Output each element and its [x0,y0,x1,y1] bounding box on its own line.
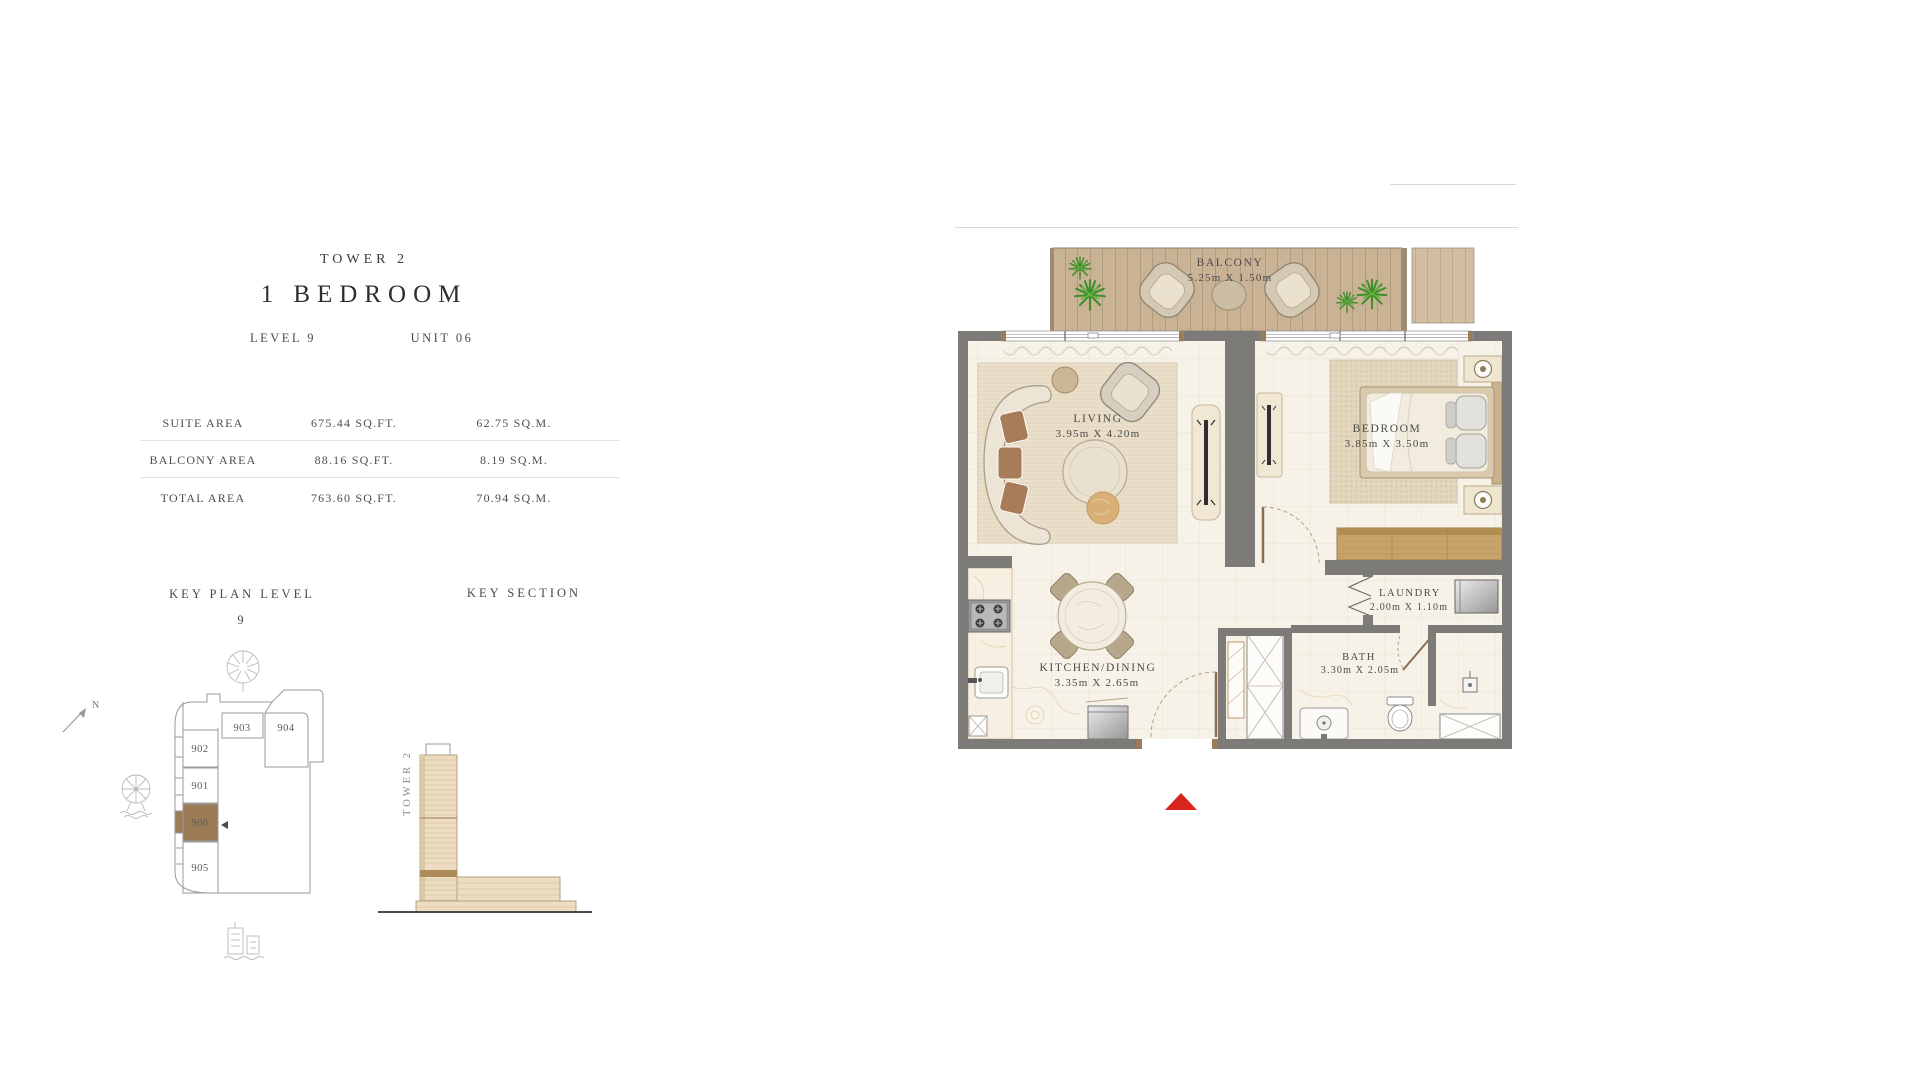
tower-section [420,744,457,912]
linen-closet [1247,634,1283,739]
level-label: LEVEL 9 [233,331,333,346]
washing-machine [1455,580,1498,613]
ferris-wheel-icon [120,775,152,819]
north-label: N [92,700,99,711]
side-table [1052,367,1078,393]
unit-number-901: 901 [191,781,208,792]
left-wall [958,331,968,749]
plant-icon [1358,280,1387,309]
balcony-area: BALCONY 5.25m X 1.50m [1050,248,1474,331]
kitchen-dims: 3.35m X 2.65m [1055,677,1140,689]
key-plan-level-number: 9 [142,613,342,628]
hallway-wall [1225,341,1255,567]
city-skyline-icon [224,922,264,960]
nightstand [1464,486,1502,514]
toilet [1387,697,1413,731]
table-separator [140,477,620,478]
unit-906-pointer-icon [221,821,228,829]
living-dims: 3.95m X 4.20m [1056,428,1141,440]
bedroom-window [1262,331,1472,341]
plant-icon [1069,257,1091,279]
title-block: TOWER 2 1 BEDROOM [228,252,500,309]
balcony-dims: 5.25m X 1.50m [1188,272,1273,284]
neighbour-balcony-deck [1412,248,1474,323]
area-row-label: BALCONY AREA [118,453,288,468]
plant-icon [1075,280,1105,310]
unit-number-904: 904 [277,723,295,734]
key-plan-diagram: N [50,640,340,960]
unit-type-title: 1 BEDROOM [228,281,500,309]
north-arrow-icon [63,708,86,732]
laundry-dims: 2.00m X 1.10m [1370,602,1448,613]
unit-number-903: 903 [233,723,250,734]
right-wall [1502,331,1512,749]
bath-label: BATH [1342,652,1376,663]
tower-label: TOWER 2 [228,252,500,268]
dining-set [1048,571,1135,660]
neighbour-boundary-line [1390,184,1516,185]
table-separator [140,440,620,441]
area-row-balcony: BALCONY AREA 88.16 SQ.FT. 8.19 SQ.M. [0,453,620,469]
laundry-label: LAUNDRY [1379,588,1441,599]
living-label: LIVING [1073,413,1122,425]
bath-vanity [1300,708,1348,740]
area-row-sqft: 763.60 SQ.FT. [274,491,434,506]
bath-dims: 3.30m X 2.05m [1321,665,1399,676]
tv-icon [1204,420,1208,505]
area-row-suite: SUITE AREA 675.44 SQ.FT. 62.75 SQ.M. [0,416,620,432]
area-row-sqft: 675.44 SQ.FT. [274,416,434,431]
unit-number-905: 905 [191,863,208,874]
dishwasher [1088,706,1128,739]
plant-icon [1337,292,1357,312]
area-row-sqm: 8.19 SQ.M. [439,453,589,468]
key-section-heading: KEY SECTION [424,586,624,601]
bedroom-label: BEDROOM [1353,423,1422,435]
palm-island-icon [227,651,259,692]
bedroom-dims: 3.85m X 3.50m [1345,438,1430,450]
window-latch-icon [1088,333,1098,338]
area-row-sqft: 88.16 SQ.FT. [274,453,434,468]
shower [1440,714,1500,739]
area-row-sqm: 62.75 SQ.M. [439,416,589,431]
kitchen-stub-wall [962,556,1012,568]
highlighted-level-band [420,870,457,877]
key-section-diagram: TOWER 2 [370,735,620,925]
balcony-label: BALCONY [1197,257,1264,269]
nightstand [1464,356,1502,382]
area-row-total: TOTAL AREA 763.60 SQ.FT. 70.94 SQ.M. [0,491,620,507]
ottoman [1087,492,1119,524]
unit-label: UNIT 06 [392,331,492,346]
key-plan-heading: KEY PLAN LEVEL [142,587,342,602]
living-window [1002,331,1183,341]
floorplan-brochure-page: TOWER 2 1 BEDROOM LEVEL 9 UNIT 06 SUITE … [0,0,1920,1080]
area-row-label: SUITE AREA [118,416,288,431]
wardrobe [1337,528,1502,560]
balcony-table [1212,280,1246,310]
window-latch-icon [1330,333,1340,338]
key-plan-unit-numbers: 902 903 904 901 906 905 [191,723,295,874]
faucet-icon [968,678,977,683]
unit-906-balcony-stub [175,811,183,833]
unit-number-906: 906 [191,818,208,829]
balcony-side-wall [1050,248,1054,331]
balcony-divider-wall [1401,248,1407,331]
tower-core-strip [420,755,425,912]
section-tower-label: TOWER 2 [402,750,413,816]
entry-arrow-icon [1165,793,1197,810]
area-row-sqm: 70.94 SQ.M. [439,491,589,506]
floor-plan: BALCONY 5.25m X 1.50m [940,210,1540,830]
kitchen-counter [968,568,1012,739]
area-row-label: TOTAL AREA [118,491,288,506]
stove [968,600,1010,632]
dining-table [1058,582,1126,650]
tv-icon [1267,405,1271,465]
kitchen-label: KITCHEN/DINING [1040,662,1157,674]
unit-number-902: 902 [191,744,208,755]
